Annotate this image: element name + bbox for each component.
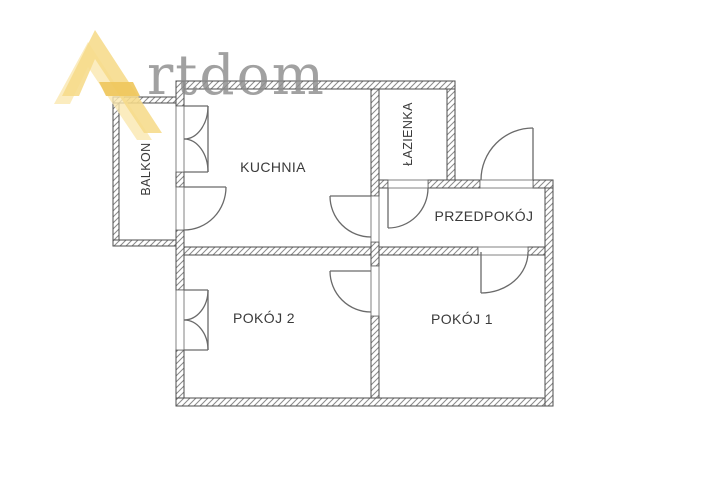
room-label-lazienka: ŁAZIENKA: [401, 102, 415, 166]
room1-room2-door: [330, 271, 371, 312]
wall-mid-h-2: [528, 247, 545, 255]
wall-hall-top-3: [533, 180, 553, 188]
wall-right: [545, 180, 553, 406]
wall-left-1: [176, 81, 184, 106]
wall-left-3: [176, 230, 184, 290]
room-label-kuchnia: KUCHNIA: [240, 159, 306, 175]
wall-mid-h-1: [184, 247, 478, 255]
opening-balcony-french-door: [176, 106, 184, 172]
opening-balcony-single-door: [176, 187, 184, 230]
opening-kitchen-door: [371, 196, 379, 242]
floor-plan-drawing: [0, 0, 710, 500]
wall-mid-v-2: [371, 316, 379, 398]
floor-plan-page: rtdom BALKON KUCHNIA ŁAZIENKA PRZEDPOKÓJ…: [0, 0, 710, 500]
opening-room1-door: [478, 247, 528, 255]
room-label-przedpokoj: PRZEDPOKÓJ: [435, 208, 534, 224]
wall-bathroom-left: [371, 89, 379, 196]
balcony-french-door: [184, 106, 208, 172]
opening-room-door: [371, 266, 379, 316]
opening-entrance-door: [480, 180, 533, 188]
opening-room2-window: [176, 290, 184, 350]
wall-balcony-top: [113, 97, 176, 103]
wall-balcony-bottom: [113, 240, 176, 246]
room2-window: [184, 290, 208, 350]
wall-balcony-left: [113, 97, 119, 246]
wall-top: [176, 81, 455, 89]
kitchen-hall-door: [330, 196, 371, 237]
wall-bathroom-right: [447, 89, 455, 180]
wall-left-2: [176, 172, 184, 187]
room-label-pokoj2: POKÓJ 2: [233, 310, 295, 326]
wall-mid-v-1: [371, 242, 379, 266]
opening-bathroom-door: [388, 180, 428, 188]
wall-hall-top-2: [428, 180, 480, 188]
bathroom-door: [388, 188, 428, 228]
wall-bottom: [176, 398, 553, 406]
room-label-pokoj1: POKÓJ 1: [431, 311, 493, 327]
room1-hall-door: [481, 252, 528, 293]
balcony-single-door: [184, 187, 226, 230]
entrance-door: [481, 128, 533, 180]
room-label-balkon: BALKON: [139, 142, 153, 195]
